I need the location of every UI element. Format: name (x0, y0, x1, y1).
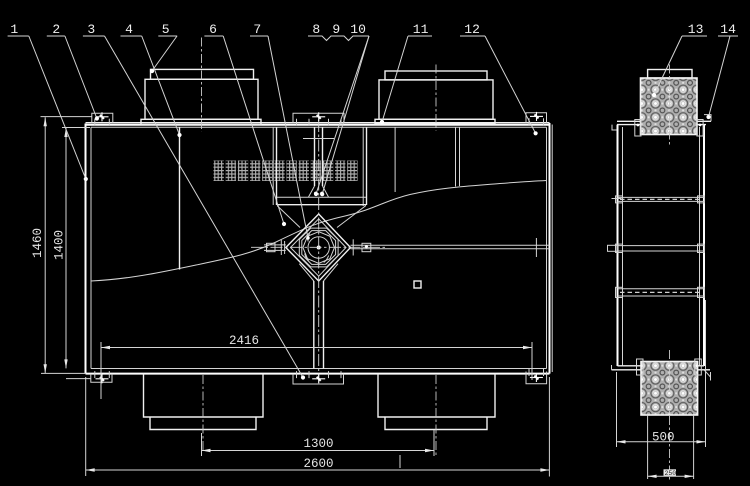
svg-text:14: 14 (720, 22, 736, 37)
svg-text:12: 12 (464, 22, 480, 37)
svg-text:1300: 1300 (304, 437, 334, 451)
svg-text:2: 2 (52, 22, 60, 37)
svg-text:3: 3 (87, 22, 95, 37)
svg-text:1: 1 (10, 22, 18, 37)
svg-text:6: 6 (209, 22, 217, 37)
svg-text:5: 5 (162, 22, 170, 37)
svg-text:7: 7 (253, 22, 261, 37)
svg-text:11: 11 (413, 22, 429, 37)
svg-text:4: 4 (125, 22, 133, 37)
svg-text:500: 500 (652, 431, 675, 445)
svg-text:10: 10 (350, 22, 366, 37)
svg-text:13: 13 (688, 22, 704, 37)
svg-text:1460: 1460 (31, 228, 45, 258)
svg-text:250: 250 (665, 470, 677, 477)
svg-text:9: 9 (332, 22, 340, 37)
svg-text:2600: 2600 (304, 457, 334, 471)
svg-text:8: 8 (312, 22, 320, 37)
svg-text:2416: 2416 (229, 334, 259, 348)
svg-text:1400: 1400 (52, 230, 66, 260)
